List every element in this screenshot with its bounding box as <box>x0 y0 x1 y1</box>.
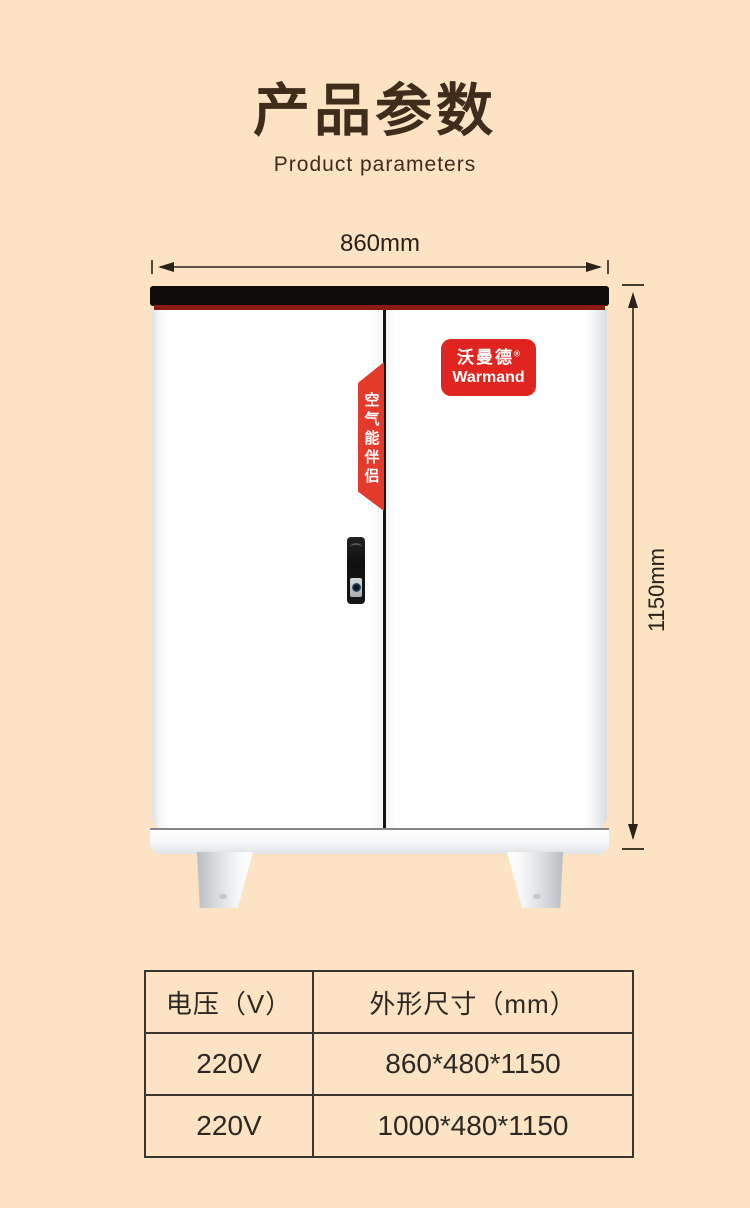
table-header-row: 电压（V） 外形尺寸（mm） <box>145 971 633 1033</box>
cabinet-base <box>150 828 609 854</box>
brand-badge: 沃曼德® Warmand <box>441 339 536 396</box>
handle-lock-cylinder <box>350 578 362 597</box>
spec-table: 电压（V） 外形尺寸（mm） 220V 860*480*1150 220V 10… <box>144 970 634 1158</box>
brand-name-cn: 沃曼德® <box>457 349 520 368</box>
cabinet-right-foot <box>507 852 563 908</box>
width-dimension-label: 860mm <box>152 230 608 258</box>
height-dimension-arrow <box>619 282 647 852</box>
air-energy-ribbon: 空气能伴侣 <box>358 362 384 511</box>
handle-groove <box>350 543 362 552</box>
size-cell: 1000*480*1150 <box>313 1095 633 1157</box>
size-cell: 860*480*1150 <box>313 1033 633 1095</box>
size-column-header: 外形尺寸（mm） <box>313 971 633 1033</box>
table-row: 220V 1000*480*1150 <box>145 1095 633 1157</box>
door-handle <box>347 537 365 604</box>
width-dimension-arrow <box>150 258 610 276</box>
brand-name-en: Warmand <box>452 369 524 387</box>
voltage-column-header: 电压（V） <box>145 971 313 1033</box>
voltage-cell: 220V <box>145 1095 313 1157</box>
table-row: 220V 860*480*1150 <box>145 1033 633 1095</box>
registered-mark: ® <box>514 349 520 358</box>
page-subtitle: Product parameters <box>0 153 750 177</box>
ribbon-label: 空气能伴侣 <box>364 392 379 487</box>
cabinet-top-cap <box>150 286 609 306</box>
height-dimension-label: 1150mm <box>644 535 670 645</box>
voltage-cell: 220V <box>145 1033 313 1095</box>
cabinet-left-foot <box>197 852 253 908</box>
product-parameters-page: 产品参数 Product parameters 860mm 1150mm 空气能… <box>0 0 750 1208</box>
page-title: 产品参数 <box>0 82 750 142</box>
